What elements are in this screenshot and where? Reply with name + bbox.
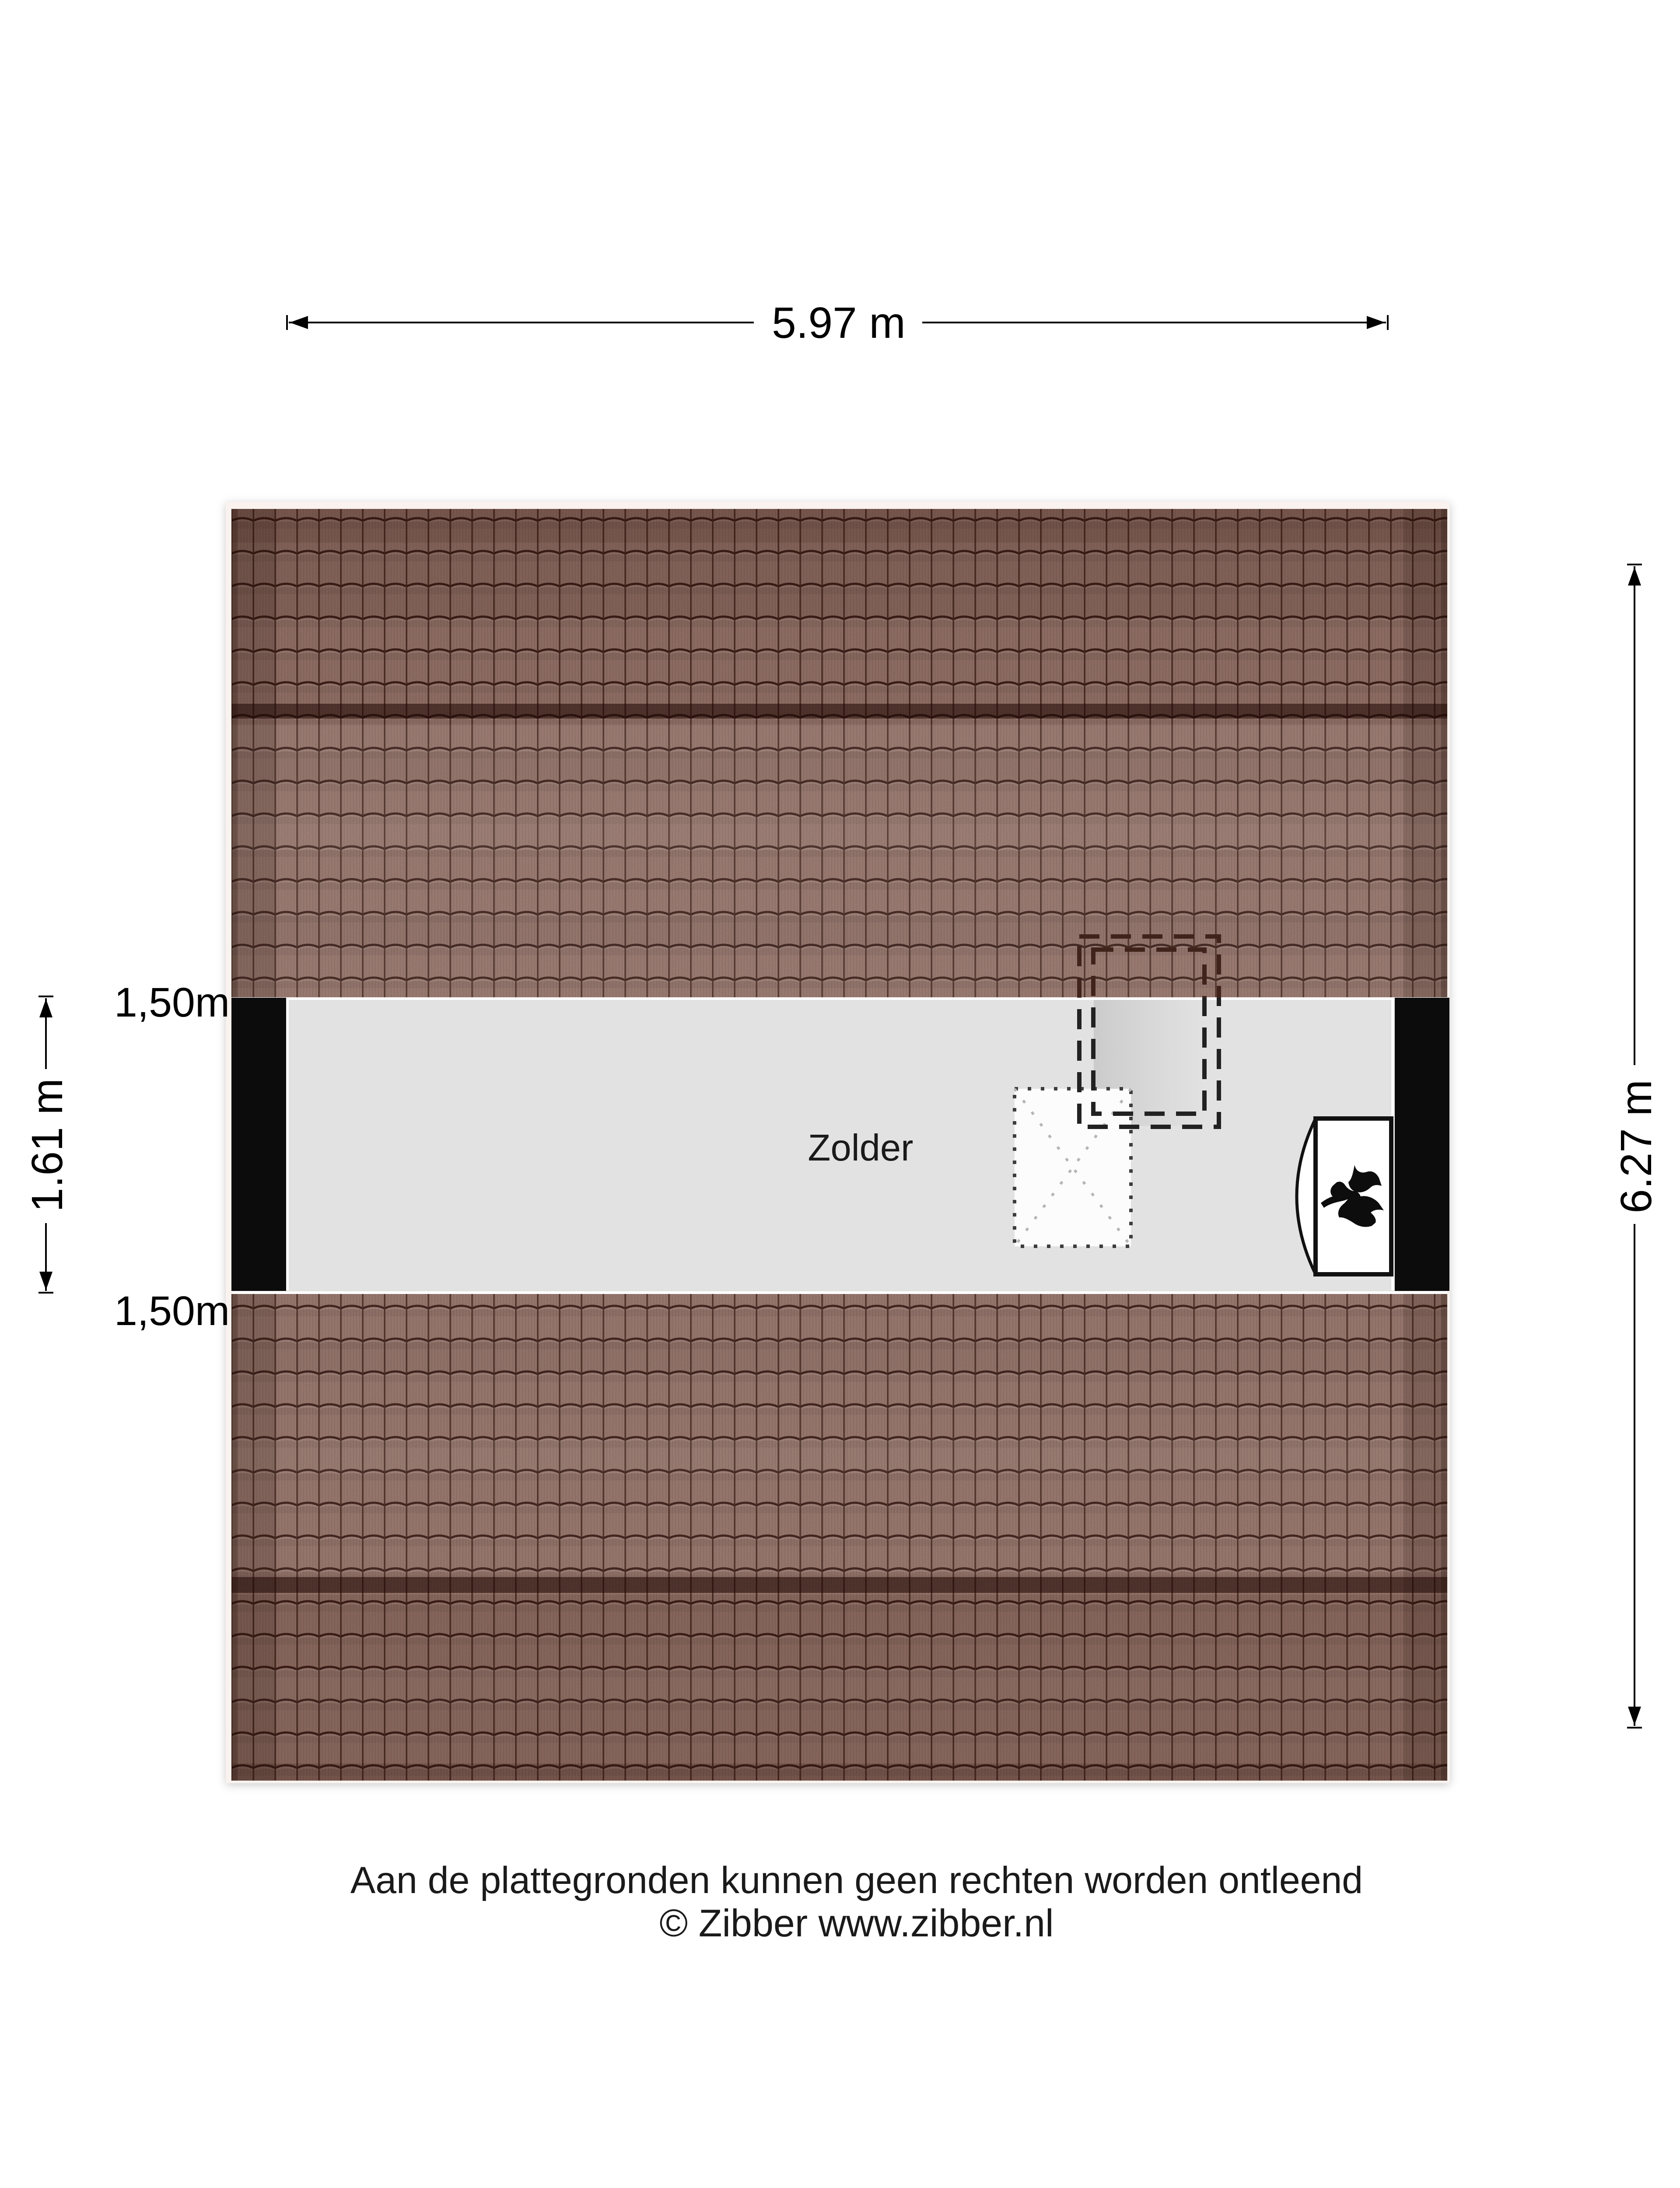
svg-text:6.27 m: 6.27 m <box>1612 1080 1661 1213</box>
svg-text:5.97 m: 5.97 m <box>772 298 906 347</box>
svg-text:© Zibber www.zibber.nl: © Zibber www.zibber.nl <box>659 1901 1053 1945</box>
svg-text:Zolder: Zolder <box>808 1127 913 1169</box>
svg-text:Aan de plattegronden kunnen ge: Aan de plattegronden kunnen geen rechten… <box>350 1859 1363 1901</box>
svg-text:1,50m: 1,50m <box>114 1288 230 1334</box>
svg-text:1.61 m: 1.61 m <box>23 1078 72 1212</box>
svg-text:1,50m: 1,50m <box>114 979 230 1026</box>
